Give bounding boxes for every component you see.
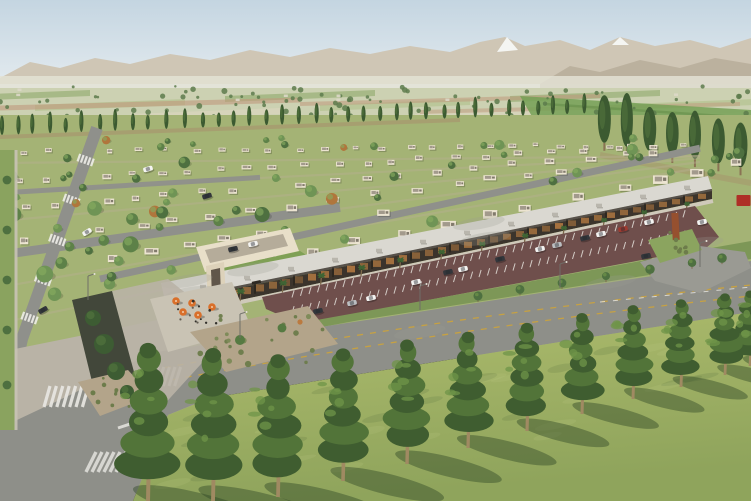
villa-grid-part bbox=[326, 148, 328, 150]
villa-grid-part bbox=[302, 149, 303, 150]
residential-trees-part bbox=[629, 154, 632, 157]
landscape-detail-part bbox=[245, 361, 251, 367]
poplar-rows-part bbox=[599, 101, 605, 130]
poplar-rows-part bbox=[645, 112, 651, 138]
landscape-detail-part bbox=[219, 318, 223, 322]
farm-fields-part bbox=[543, 101, 547, 105]
landscape-detail-part bbox=[96, 400, 101, 405]
residential-trees-part bbox=[501, 152, 504, 155]
villa-grid-part bbox=[188, 171, 190, 173]
foreground-tree-row-part bbox=[579, 359, 587, 367]
villa-grid-part bbox=[273, 166, 275, 168]
villa-grid-part bbox=[223, 149, 225, 151]
residential-trees-part bbox=[38, 267, 46, 275]
retail-strip-detail-part bbox=[698, 194, 706, 199]
farm-fields-part bbox=[257, 96, 260, 99]
foreground-tree-row-part bbox=[448, 373, 458, 382]
villa-grid-part bbox=[57, 204, 59, 206]
foreground-tree-row-part bbox=[521, 323, 533, 334]
retail-strip-detail-part bbox=[333, 261, 339, 262]
residential-trees-part bbox=[636, 154, 640, 158]
farm-fields-part bbox=[180, 94, 185, 99]
farm-fields-part bbox=[594, 91, 598, 95]
farm-fields-part bbox=[45, 99, 49, 103]
villa-grid-part bbox=[195, 150, 199, 152]
cafe-terrace-part bbox=[179, 318, 181, 320]
farm-fields-part bbox=[298, 87, 303, 92]
farm-fields-part bbox=[221, 88, 227, 94]
villa-grid-part bbox=[520, 206, 526, 210]
residential-trees-part bbox=[67, 172, 70, 175]
farm-fields-part bbox=[486, 100, 489, 103]
cafe-terrace-part bbox=[195, 320, 197, 322]
villa-grid-part bbox=[47, 179, 48, 181]
farm-fields-part bbox=[297, 97, 302, 102]
landscape-detail-part bbox=[689, 260, 693, 264]
poplar-rows-part bbox=[48, 114, 50, 126]
farm-fields-part bbox=[72, 85, 75, 88]
poplar-rows-part bbox=[247, 108, 249, 119]
residential-trees-part bbox=[103, 137, 107, 141]
residential-trees-part bbox=[233, 207, 237, 211]
villa-grid-part bbox=[268, 166, 272, 168]
villa-grid-part bbox=[485, 176, 491, 179]
villa-grid-part bbox=[378, 148, 382, 150]
residential-trees-part bbox=[375, 195, 378, 198]
landscape-detail-part bbox=[684, 250, 689, 255]
farm-fields-part bbox=[406, 89, 410, 93]
farm-fields-part bbox=[525, 89, 529, 93]
landscape-detail-part bbox=[87, 311, 95, 319]
villa-grid-part bbox=[470, 166, 474, 169]
residential-trees-part bbox=[573, 168, 578, 173]
foreground-tree-row-part bbox=[270, 354, 285, 368]
villa-grid-part bbox=[419, 189, 421, 191]
foreground-tree-row-part bbox=[521, 358, 528, 364]
farm-fields-part bbox=[369, 98, 372, 101]
retail-strip-detail-part bbox=[641, 198, 647, 199]
villa-grid-part bbox=[288, 206, 293, 210]
villa-grid-part bbox=[439, 171, 441, 173]
retail-strip-detail-part bbox=[425, 250, 433, 256]
residential-trees-part bbox=[64, 155, 68, 159]
villa-grid-part bbox=[298, 149, 301, 151]
residential-trees-part bbox=[712, 156, 716, 160]
villa-grid-part bbox=[133, 197, 137, 200]
landscape-detail-part bbox=[109, 363, 118, 372]
residential-trees-part bbox=[167, 266, 172, 271]
retail-strip-detail-part bbox=[288, 267, 294, 271]
landscape-detail-part bbox=[238, 349, 244, 355]
landscape-detail-part bbox=[197, 351, 203, 357]
villa-grid-part bbox=[461, 182, 463, 184]
farm-fields-part bbox=[160, 94, 165, 99]
residential-trees-part bbox=[157, 207, 163, 213]
residential-trees-part bbox=[89, 202, 96, 209]
poplar-rows-part bbox=[329, 109, 331, 118]
farm-fields-part bbox=[737, 94, 742, 99]
residential-trees-part bbox=[727, 153, 730, 156]
villa-grid-part bbox=[379, 211, 385, 214]
villa-grid-part bbox=[492, 146, 493, 147]
farm-fields-part bbox=[236, 99, 240, 102]
farm-fields-part bbox=[416, 109, 420, 113]
villa-grid-part bbox=[165, 193, 167, 195]
villa-grid-part bbox=[146, 249, 153, 253]
landscape-detail-part bbox=[674, 246, 678, 250]
landscape-detail-part bbox=[647, 266, 651, 270]
farm-fields-part bbox=[601, 91, 604, 94]
villa-grid-part bbox=[247, 209, 252, 212]
villa-grid-part bbox=[548, 150, 552, 152]
poplar-rows-part bbox=[232, 112, 234, 121]
foreground-tree-row-part bbox=[661, 328, 672, 334]
villa-grid-part bbox=[247, 149, 249, 150]
residential-trees-part bbox=[49, 288, 56, 295]
villa-grid-part bbox=[206, 215, 211, 218]
landscape-detail-part bbox=[668, 231, 671, 234]
poplar-rows-part bbox=[346, 108, 348, 117]
farm-fields-part bbox=[731, 99, 735, 103]
villa-grid-part bbox=[218, 167, 221, 169]
foreground-tree-row-part bbox=[392, 360, 403, 369]
farm-fields-part bbox=[745, 89, 750, 94]
residential-trees-part bbox=[327, 194, 333, 200]
landscape-detail-part bbox=[3, 326, 12, 335]
villa-grid-part bbox=[430, 146, 433, 148]
poplar-rows-part bbox=[456, 104, 458, 113]
landscape-detail-part bbox=[110, 404, 114, 408]
landscape-detail-part bbox=[293, 330, 299, 336]
cafe-terrace-part bbox=[208, 309, 211, 312]
retail-strip-detail-part bbox=[308, 274, 316, 281]
poplar-rows-part bbox=[424, 104, 426, 113]
poplar-rows-part bbox=[395, 105, 397, 114]
foreground-tree-row-part bbox=[631, 324, 637, 331]
poplar-rows-part bbox=[551, 97, 553, 108]
retail-strip-detail-part bbox=[672, 199, 680, 204]
villa-grid-part bbox=[458, 145, 461, 147]
residential-trees-part bbox=[256, 208, 264, 216]
foreground-tree-row-part bbox=[574, 332, 581, 338]
foreground-tree-row-part bbox=[249, 387, 260, 391]
poplar-rows-part bbox=[521, 102, 523, 110]
villa-grid-part bbox=[509, 144, 513, 146]
residential-trees-part bbox=[628, 145, 634, 151]
villa-grid-part bbox=[234, 190, 236, 192]
villa-grid-part bbox=[28, 206, 30, 208]
farm-fields-part bbox=[38, 100, 41, 103]
villa-grid-part bbox=[294, 206, 296, 209]
villa-grid-part bbox=[433, 146, 434, 148]
residential-trees-part bbox=[150, 207, 156, 213]
retail-strip-detail-part bbox=[420, 240, 426, 244]
poplar-rows-part bbox=[490, 104, 492, 112]
villa-grid-part bbox=[167, 218, 173, 221]
farm-fields-part bbox=[196, 96, 199, 99]
villa-grid-part bbox=[341, 163, 343, 165]
farm-fields-part bbox=[336, 102, 342, 108]
villa-grid-part bbox=[301, 163, 305, 165]
landscape-detail-part bbox=[3, 276, 12, 285]
poplar-rows-part bbox=[113, 112, 115, 124]
villa-grid-part bbox=[558, 145, 562, 147]
foreground-tree-row-part bbox=[576, 313, 587, 323]
foreground-tree-row-part bbox=[336, 348, 351, 361]
villa-grid-part bbox=[487, 156, 489, 158]
landscape-detail-part bbox=[645, 265, 654, 274]
retail-strip-detail-part bbox=[607, 212, 615, 218]
villa-grid-part bbox=[199, 189, 203, 192]
villa-grid-part bbox=[413, 146, 415, 148]
villa-grid-part bbox=[136, 148, 140, 150]
farm-fields-part bbox=[445, 99, 449, 102]
residential-trees-part bbox=[115, 257, 120, 262]
retail-strip-detail-part bbox=[597, 207, 603, 208]
villa-grid-part bbox=[253, 209, 255, 211]
villa-grid-part bbox=[519, 152, 521, 154]
landscape-detail-part bbox=[227, 358, 232, 363]
villa-grid-part bbox=[527, 207, 530, 210]
landscape-detail-part bbox=[219, 314, 223, 318]
villa-grid-part bbox=[192, 243, 195, 245]
retail-strip-detail-part bbox=[542, 226, 550, 232]
villa-grid-part bbox=[164, 172, 166, 173]
villa-grid-part bbox=[212, 216, 214, 218]
poplar-rows-part bbox=[667, 117, 673, 143]
foreground-tree-row-part bbox=[185, 399, 197, 404]
residential-trees-part bbox=[264, 138, 267, 141]
villa-grid-part bbox=[44, 178, 47, 181]
foreground-tree-row-part bbox=[400, 340, 414, 352]
landscape-detail-part bbox=[96, 336, 106, 346]
farm-fields-part bbox=[284, 95, 288, 98]
villa-grid-part bbox=[111, 150, 112, 152]
villa-grid-part bbox=[109, 256, 114, 260]
landscape-detail-part bbox=[475, 293, 479, 297]
landscape-detail-part bbox=[310, 348, 315, 353]
foreground-tree-row-part bbox=[325, 410, 336, 417]
landscape-detail-part bbox=[566, 261, 568, 263]
foreground-tree-row-part bbox=[259, 421, 271, 429]
villa-grid-part bbox=[587, 158, 592, 161]
poplar-rows-part bbox=[713, 123, 719, 150]
foreground-tree-row-part bbox=[401, 363, 411, 368]
villa-grid-part bbox=[699, 171, 702, 174]
cafe-terrace-part bbox=[177, 308, 179, 310]
villa-grid-part bbox=[184, 171, 187, 173]
retail-strip-detail-part bbox=[568, 220, 576, 226]
landscape-detail-part bbox=[102, 377, 105, 380]
farm-fields-part bbox=[5, 105, 9, 109]
villa-grid-part bbox=[413, 189, 419, 192]
villa-grid-part bbox=[509, 161, 513, 164]
aerial-rendering-master-planned-community bbox=[0, 0, 751, 501]
residential-trees-part bbox=[550, 177, 554, 181]
villa-grid-part bbox=[376, 192, 378, 194]
foreground-tree-row-part bbox=[388, 383, 402, 392]
villa-grid-part bbox=[370, 163, 372, 165]
poplar-rows-part bbox=[315, 105, 317, 116]
retail-strip-detail-part bbox=[684, 186, 690, 190]
villa-grid-part bbox=[366, 162, 369, 165]
villa-grid-part bbox=[203, 190, 205, 192]
landscape-detail-part bbox=[306, 314, 311, 319]
poplar-rows-part bbox=[583, 96, 585, 107]
villa-grid-part bbox=[513, 162, 515, 164]
foreground-tree-row-part bbox=[676, 299, 686, 308]
poplar-rows-part bbox=[217, 114, 219, 122]
retail-strip-detail-part bbox=[451, 244, 459, 250]
farm-fields-part bbox=[184, 90, 188, 94]
foreground-tree-row-part bbox=[666, 319, 678, 327]
retail-strip-detail-part bbox=[646, 204, 654, 209]
poplar-rows-part bbox=[30, 116, 32, 127]
foreground-tree-row-part bbox=[317, 382, 327, 386]
retail-strip-detail-part bbox=[412, 252, 420, 258]
villa-grid-part bbox=[617, 147, 620, 150]
villa-grid-part bbox=[21, 180, 22, 182]
cafe-terrace-part bbox=[175, 300, 177, 302]
retail-strip-detail-part bbox=[386, 258, 394, 265]
villa-grid-part bbox=[101, 229, 103, 231]
landscape-detail-part bbox=[473, 291, 482, 300]
villa-grid-part bbox=[386, 211, 389, 214]
foreground-tree-row-part bbox=[132, 370, 142, 378]
villa-grid-part bbox=[140, 148, 142, 149]
foreground-tree-row-part bbox=[628, 305, 639, 314]
villa-grid-part bbox=[103, 175, 107, 178]
residential-trees-part bbox=[734, 148, 740, 154]
villa-grid-part bbox=[137, 197, 139, 199]
landscape-detail-part bbox=[114, 388, 118, 392]
villa-grid-part bbox=[557, 170, 562, 173]
villa-grid-part bbox=[621, 185, 627, 188]
villa-grid-part bbox=[248, 166, 250, 168]
villa-grid-part bbox=[219, 236, 225, 239]
landscape-detail-part bbox=[688, 259, 696, 267]
villa-grid-part bbox=[160, 193, 164, 195]
foreground-tree-row-part bbox=[736, 320, 743, 327]
villa-grid-part bbox=[461, 146, 462, 148]
villa-grid-part bbox=[738, 160, 740, 163]
villa-grid-part bbox=[199, 150, 201, 152]
farm-fields-part bbox=[320, 93, 324, 97]
villa-grid-part bbox=[265, 149, 268, 151]
farm-fields-part bbox=[16, 94, 20, 97]
retail-strip-detail-part bbox=[685, 196, 693, 201]
villa-grid-part bbox=[692, 170, 699, 174]
residential-trees-part bbox=[61, 176, 64, 179]
villa-grid-part bbox=[574, 194, 580, 198]
foreground-tree-row-part bbox=[334, 388, 341, 392]
villa-grid-part bbox=[52, 204, 56, 207]
villa-grid-part bbox=[409, 146, 413, 148]
foreground-tree-row-part bbox=[203, 410, 212, 417]
villa-grid-part bbox=[226, 237, 229, 239]
residential-trees-part bbox=[630, 135, 634, 139]
retail-strip-detail-part bbox=[245, 279, 251, 280]
retail-strip-detail-part bbox=[373, 260, 381, 267]
villa-grid-part bbox=[443, 222, 451, 226]
villa-grid-part bbox=[306, 163, 308, 165]
poplar-rows-part bbox=[536, 102, 538, 110]
villa-grid-part bbox=[492, 177, 495, 179]
farm-fields-part bbox=[494, 99, 499, 104]
landscape-detail-part bbox=[684, 245, 688, 249]
foreground-tree-row-part bbox=[401, 397, 414, 401]
villa-grid-part bbox=[243, 149, 247, 151]
farm-fields-part bbox=[633, 107, 636, 110]
villa-grid-part bbox=[229, 189, 233, 192]
villa-grid-part bbox=[21, 152, 24, 154]
farm-fields-part bbox=[240, 95, 243, 98]
villa-grid-part bbox=[356, 239, 359, 242]
farm-fields-part bbox=[75, 108, 79, 112]
residential-trees-part bbox=[306, 186, 312, 192]
farm-fields-part bbox=[262, 103, 266, 107]
retail-strip-detail-part bbox=[640, 195, 646, 199]
landscape-detail-part bbox=[90, 390, 95, 395]
foreground-tree-row-part bbox=[268, 406, 274, 412]
villa-grid-part bbox=[174, 219, 177, 221]
farm-fields-part bbox=[337, 95, 341, 98]
monument-sign bbox=[671, 213, 679, 240]
residential-trees-part bbox=[99, 236, 104, 241]
villa-grid-part bbox=[536, 144, 537, 145]
villa-grid-part bbox=[585, 150, 587, 152]
farm-fields-part bbox=[196, 103, 202, 109]
residential-trees-part bbox=[495, 141, 500, 146]
landscape-detail-part bbox=[426, 283, 428, 285]
residential-trees-part bbox=[54, 224, 58, 228]
villa-grid-part bbox=[580, 195, 583, 198]
villa-grid-part bbox=[611, 146, 613, 147]
landscape-detail-part bbox=[278, 324, 287, 333]
cafe-terrace-part bbox=[198, 305, 200, 307]
cafe-terrace-part bbox=[197, 314, 199, 316]
villa-grid-part bbox=[46, 149, 49, 151]
retail-strip-detail-part bbox=[508, 222, 514, 226]
residential-trees-part bbox=[57, 258, 63, 264]
foreground-tree-row-part bbox=[120, 393, 130, 400]
villa-grid-part bbox=[584, 146, 587, 148]
poplar-rows-part bbox=[131, 115, 133, 124]
residential-trees-part bbox=[708, 170, 712, 174]
poplar-rows-part bbox=[183, 111, 185, 122]
foreground-tree-row-part bbox=[209, 400, 217, 404]
retail-strip-detail-part bbox=[244, 276, 250, 280]
residential-trees-part bbox=[164, 199, 167, 202]
cafe-terrace-part bbox=[177, 303, 179, 305]
foreground-tree-row-part bbox=[505, 367, 513, 372]
farm-fields-part bbox=[174, 85, 176, 87]
villa-grid-part bbox=[357, 147, 358, 148]
villa-grid-part bbox=[681, 144, 684, 146]
retail-strip-detail-part bbox=[464, 231, 470, 235]
farm-fields-part bbox=[453, 94, 457, 98]
foreground-tree-row-part bbox=[706, 340, 720, 346]
cafe-terrace-part bbox=[215, 322, 217, 324]
landscape-detail-part bbox=[102, 383, 107, 388]
landscape-detail-part bbox=[294, 315, 298, 319]
retail-strip-detail-part bbox=[594, 215, 602, 221]
villa-grid-part bbox=[475, 167, 477, 169]
villa-grid-part bbox=[354, 146, 357, 148]
poplar-rows-part bbox=[409, 104, 411, 114]
foreground-tree-row-part bbox=[334, 398, 344, 407]
poplar-rows-part bbox=[265, 111, 267, 120]
